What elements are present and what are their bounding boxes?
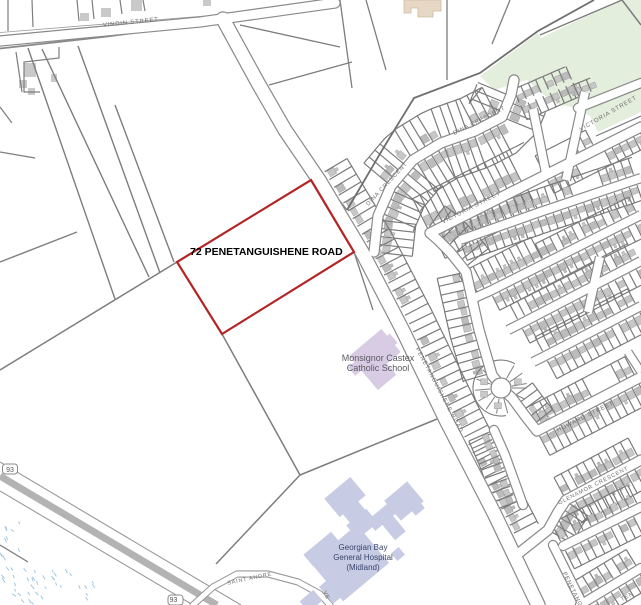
svg-text:72 PENETANGUISHENE ROAD: 72 PENETANGUISHENE ROAD	[190, 246, 343, 258]
svg-text:General Hospital: General Hospital	[333, 553, 393, 562]
svg-text:93: 93	[6, 467, 14, 474]
svg-text:Monsignor Castex: Monsignor Castex	[342, 353, 415, 363]
svg-text:(Midland): (Midland)	[346, 563, 380, 572]
svg-text:93: 93	[170, 597, 178, 604]
svg-text:Catholic School: Catholic School	[347, 363, 410, 373]
svg-text:Georgian Bay: Georgian Bay	[339, 543, 388, 552]
